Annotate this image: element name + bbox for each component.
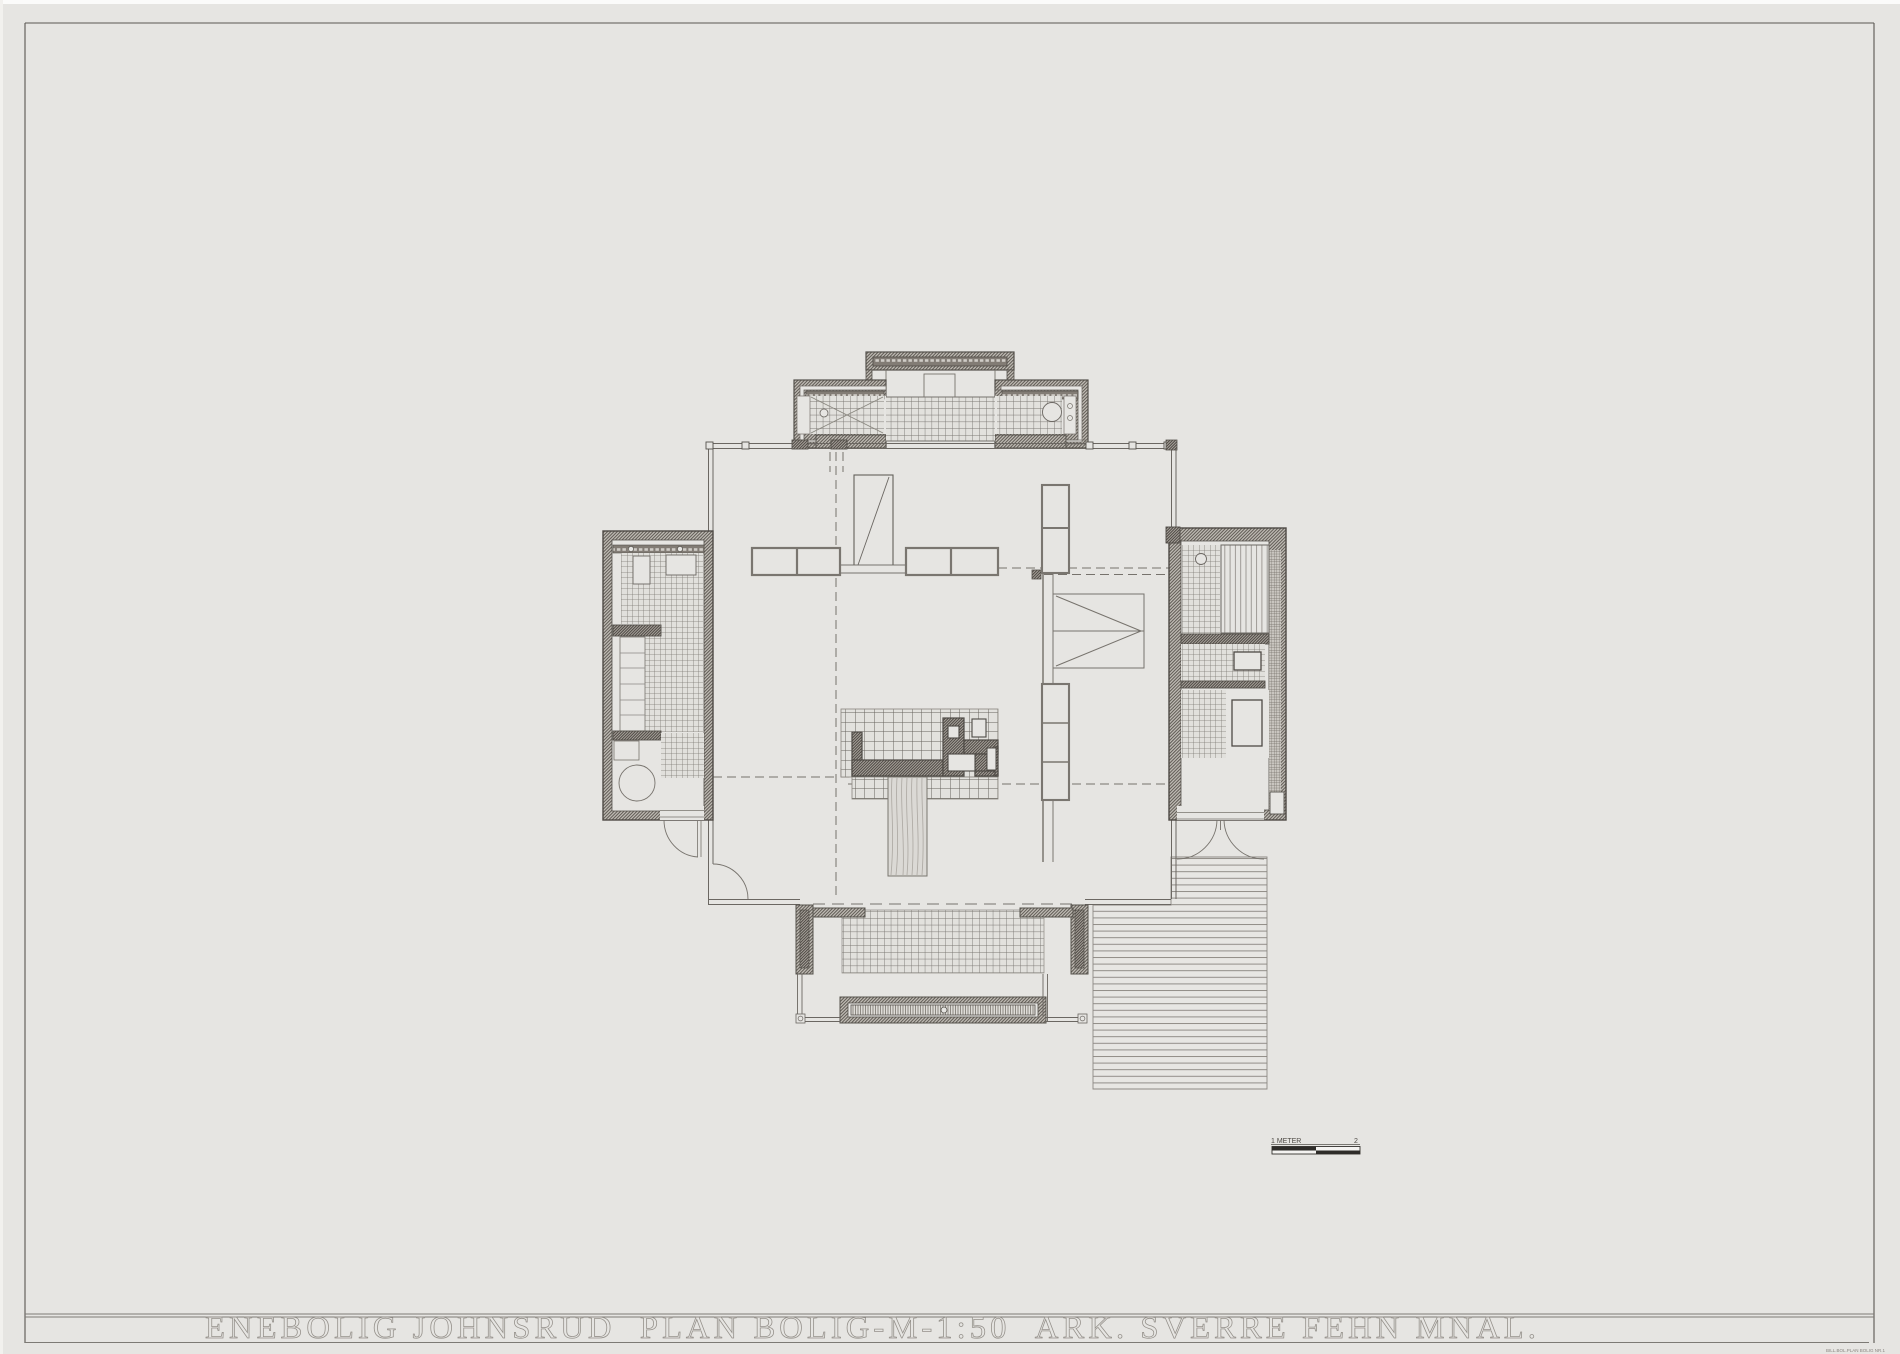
svg-text:1 METER: 1 METER [1271, 1138, 1301, 1145]
svg-text:ENEBOLIG JOHNSRUD PLAN BOLIG-: ENEBOLIG JOHNSRUD PLAN BOLIG-M-1:50 ARK.… [205, 1309, 1540, 1345]
svg-text:2: 2 [1354, 1138, 1358, 1145]
svg-text:BILL.BOL.PLAN BOLIG NR.1: BILL.BOL.PLAN BOLIG NR.1 [1826, 1348, 1886, 1353]
